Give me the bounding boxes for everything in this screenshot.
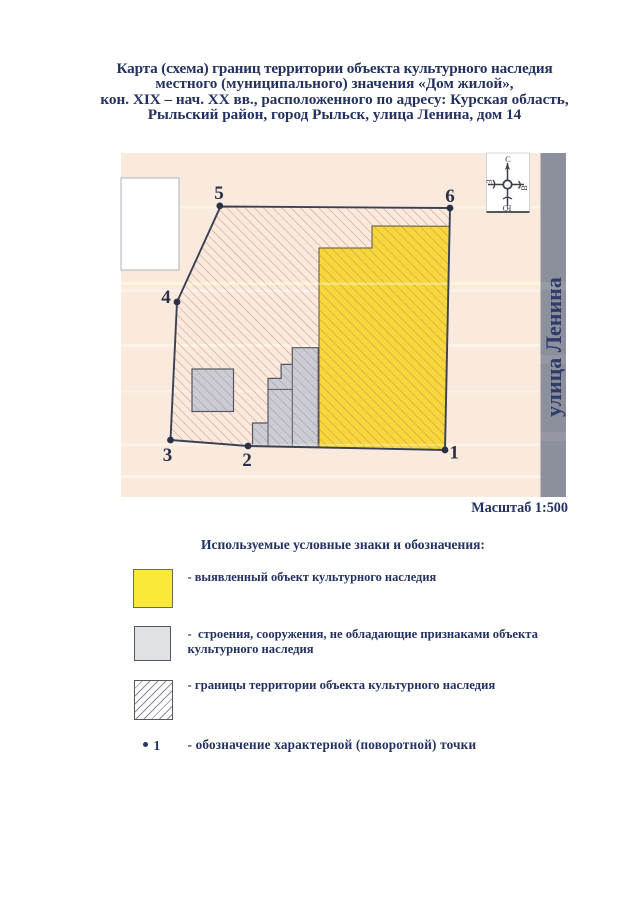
svg-text:4: 4 xyxy=(161,287,171,308)
svg-text:улица Ленина: улица Ленина xyxy=(541,277,566,417)
svg-text:З: З xyxy=(484,179,494,183)
svg-text:В: В xyxy=(519,185,529,191)
svg-text:С: С xyxy=(505,154,511,164)
svg-text:5: 5 xyxy=(214,183,224,204)
svg-text:Ю: Ю xyxy=(502,204,511,214)
svg-text:6: 6 xyxy=(445,186,455,207)
svg-text:3: 3 xyxy=(163,445,173,466)
svg-text:1: 1 xyxy=(450,443,460,464)
svg-text:2: 2 xyxy=(242,450,252,471)
